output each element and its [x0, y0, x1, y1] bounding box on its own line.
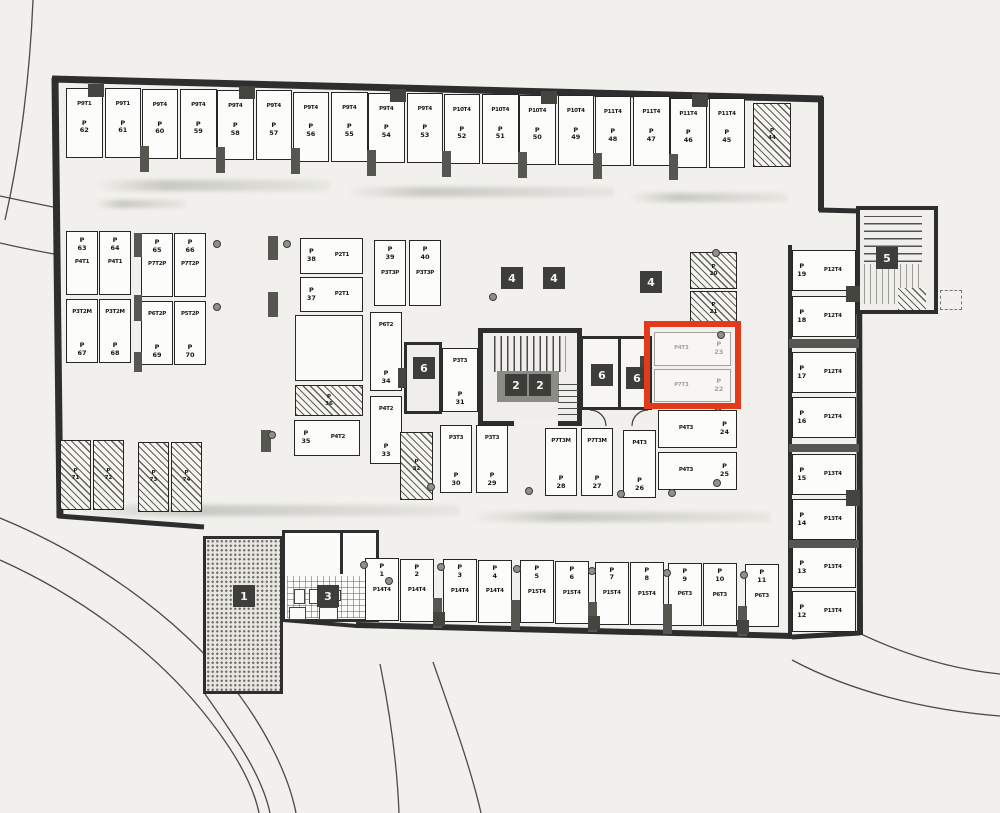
space-type-code: P14T4: [451, 589, 469, 595]
wc-fixture: [289, 607, 306, 620]
space-number: P72: [105, 468, 113, 481]
parking-space-68: P3T2MP68: [99, 299, 131, 363]
storage-square: [295, 315, 363, 381]
parking-space-55: P9T4P55: [331, 92, 368, 162]
space-number: P69: [152, 344, 161, 360]
area-marker-1: 1: [233, 585, 255, 607]
parking-space-12: P12P13T4: [792, 591, 856, 632]
space-number: P24: [713, 421, 736, 437]
area-marker-6: 6: [591, 364, 613, 386]
area-marker-2: 2: [529, 374, 551, 396]
space-number: P7: [609, 567, 614, 583]
parking-space-49: P10T4P49: [558, 95, 595, 165]
parking-space-15: P15P13T4: [792, 454, 856, 495]
space-type-code: P12T4: [811, 314, 854, 320]
space-number: P31: [455, 391, 464, 407]
structural-pillar: [511, 600, 520, 630]
parking-space-71: P71: [60, 440, 91, 510]
parking-space-62: P9T1P62: [66, 88, 103, 158]
parking-space-2: P2P14T4: [400, 559, 434, 622]
area-marker-4: 4: [543, 267, 565, 289]
parking-space-70: P5T2PP70: [174, 301, 206, 365]
space-number: P46: [684, 129, 693, 145]
structural-pillar: [291, 148, 300, 174]
space-number: P6: [569, 566, 574, 582]
space-number: P68: [110, 342, 119, 358]
space-type-code: P7T3M: [551, 439, 570, 445]
space-number: P12: [793, 604, 812, 620]
parking-space-26: P4T3P26: [623, 430, 656, 498]
parking-space-9: P9P6T3: [668, 563, 702, 626]
space-number: P14: [793, 512, 812, 528]
space-type-code: P4T1: [75, 260, 89, 266]
parking-space-27: P7T3MP27: [581, 428, 613, 496]
space-type-code: P9T1: [116, 102, 130, 108]
space-number: P66: [185, 239, 194, 255]
column-dot: [213, 303, 221, 311]
door-marker: [692, 94, 708, 107]
space-number: P63: [77, 237, 86, 253]
parking-space-10: P10P6T3: [703, 563, 737, 626]
door-marker: [541, 91, 557, 104]
column-dot: [713, 479, 721, 487]
space-number: P37: [301, 287, 322, 303]
area-marker-5: 5: [876, 247, 898, 269]
space-number: P29: [487, 472, 496, 488]
structural-pillar: [268, 292, 278, 317]
stair-steps: [558, 379, 578, 415]
space-type-code: P3T3: [453, 359, 467, 365]
space-type-code: P12T4: [811, 370, 854, 376]
column-dot: [213, 240, 221, 248]
space-number: P35: [295, 430, 317, 446]
space-type-code: P10T4: [528, 109, 546, 115]
door-marker: [846, 286, 860, 302]
space-type-code: P3T3: [449, 436, 463, 442]
space-type-code: P4T2: [379, 407, 393, 413]
parking-space-19: P19P12T4: [792, 250, 856, 291]
space-type-code: P11T4: [718, 112, 736, 118]
area-marker-3: 3: [317, 585, 339, 607]
space-number: P34: [381, 370, 390, 386]
space-number: P20: [710, 264, 718, 277]
space-type-code: P12T4: [811, 415, 854, 421]
column-dot: [740, 571, 748, 579]
parking-space-61: P9T1P61: [105, 88, 142, 158]
space-type-code: P7T2P: [148, 262, 166, 268]
parking-space-29: P3T3P29: [476, 425, 508, 493]
space-number: P15: [793, 467, 812, 483]
structural-pillar: [216, 147, 225, 173]
door-marker: [846, 490, 860, 506]
space-number: P9: [682, 568, 687, 584]
space-number: P48: [608, 128, 617, 144]
column-dot: [360, 561, 368, 569]
space-type-code: P4T3: [632, 441, 646, 447]
space-type-code: P7T2P: [181, 262, 199, 268]
space-number: P51: [496, 126, 505, 142]
door-marker: [737, 620, 749, 634]
space-type-code: P11T4: [679, 112, 697, 118]
space-number: P38: [301, 248, 322, 264]
space-number: P19: [793, 263, 812, 279]
space-type-code: P9T4: [418, 107, 432, 113]
structural-pillar: [593, 153, 602, 179]
gravel-area: [203, 536, 283, 694]
space-number: P5: [534, 565, 539, 581]
floor-plan-scan: P9T1P62P9T1P61P9T4P60P9T4P59P9T4P58P9T4P…: [0, 0, 1000, 813]
space-type-code: P9T4: [228, 104, 242, 110]
parking-space-7: P7P15T4: [595, 562, 629, 625]
space-number: P32: [413, 459, 421, 472]
column-dot: [427, 483, 435, 491]
column-dot: [489, 293, 497, 301]
space-type-code: P14T4: [373, 588, 391, 594]
column-dot: [268, 431, 276, 439]
space-number: P65: [152, 239, 161, 255]
space-type-code: P7T3M: [587, 439, 606, 445]
door-marker: [433, 612, 445, 626]
space-type-code: P3T3: [485, 436, 499, 442]
door-marker: [588, 616, 600, 630]
space-type-code: P6T3: [678, 592, 692, 598]
structural-pillar: [518, 152, 527, 178]
parking-space-25: P4T3P25: [658, 452, 737, 490]
space-type-code: P13T4: [811, 472, 854, 478]
space-type-code: P11T4: [642, 110, 660, 116]
space-number: P64: [110, 237, 119, 253]
space-type-code: P6T3: [713, 593, 727, 599]
parking-space-33: P4T2P33: [370, 396, 402, 464]
space-type-code: P13T4: [811, 517, 854, 523]
highlight-rectangle: [644, 321, 741, 409]
parking-space-66: P66P7T2P: [174, 233, 206, 297]
annex-pad: [940, 290, 962, 310]
space-number: P55: [345, 123, 354, 139]
parking-space-11: P11P6T3: [745, 564, 779, 627]
space-type-code: P3T2M: [105, 310, 124, 316]
parking-space-72: P72: [93, 440, 124, 510]
space-number: P33: [381, 443, 390, 459]
parking-space-69: P6T2PP69: [141, 301, 173, 365]
space-number: P57: [269, 122, 278, 138]
space-type-code: P10T4: [491, 108, 509, 114]
parking-space-13: P13P13T4: [792, 547, 856, 588]
structural-pillar: [442, 151, 451, 177]
space-number: P18: [793, 309, 812, 325]
parking-space-38: P38P2T1: [300, 238, 363, 274]
space-number: P53: [420, 124, 429, 140]
space-number: P3: [457, 564, 462, 580]
space-number: P30: [451, 472, 460, 488]
parking-space-51: P10T4P51: [482, 94, 519, 164]
parking-space-4: P4P14T4: [478, 560, 512, 623]
parking-space-36: P36: [295, 385, 363, 416]
wc-fixture: [294, 589, 305, 604]
door-marker: [390, 89, 406, 102]
area-marker-4: 4: [640, 271, 662, 293]
parking-space-18: P18P12T4: [792, 296, 856, 337]
column-dot: [525, 487, 533, 495]
scan-smudge: [95, 200, 185, 208]
space-number: P8: [644, 567, 649, 583]
space-number: P61: [118, 120, 127, 136]
space-number: P40: [420, 246, 429, 262]
space-type-code: P14T4: [486, 589, 504, 595]
space-number: P56: [306, 123, 315, 139]
space-type-code: P6T2P: [148, 312, 166, 318]
structural-pillar: [134, 233, 142, 257]
parking-space-67: P3T2MP67: [66, 299, 98, 363]
space-number: P67: [77, 342, 86, 358]
parking-space-37: P37P2T1: [300, 277, 363, 312]
space-type-code: P2T1: [322, 292, 362, 298]
column-dot: [668, 489, 676, 497]
space-number: P60: [155, 121, 164, 137]
column-dot: [283, 240, 291, 248]
space-number: P70: [185, 344, 194, 360]
parking-space-6: P6P15T4: [555, 561, 589, 624]
room-divider-wall: [618, 336, 621, 410]
parking-space-39: P39P3T3P: [374, 240, 406, 306]
structural-pillar: [669, 154, 678, 180]
space-type-code: P9T4: [342, 106, 356, 112]
structural-pillar: [268, 236, 278, 260]
space-type-code: P4T2: [317, 435, 359, 441]
space-type-code: P6T2: [379, 323, 393, 329]
space-number: P25: [713, 463, 736, 479]
space-type-code: P15T4: [638, 592, 656, 598]
space-type-code: P3T3P: [381, 271, 399, 277]
wc-inner-wall: [340, 532, 343, 574]
space-type-code: P9T4: [153, 103, 167, 109]
structural-pillar: [134, 295, 142, 321]
space-type-code: P15T4: [528, 590, 546, 596]
column-dot: [712, 249, 720, 257]
parking-space-5: P5P15T4: [520, 560, 554, 623]
space-type-code: P2T1: [322, 253, 362, 259]
space-number: P47: [647, 128, 656, 144]
column-dot: [437, 563, 445, 571]
space-number: P58: [231, 122, 240, 138]
space-type-code: P9T4: [191, 103, 205, 109]
space-number: P36: [325, 394, 333, 407]
space-type-code: P9T4: [379, 107, 393, 113]
area-marker-4: 4: [501, 267, 523, 289]
space-type-code: P5T2P: [181, 312, 199, 318]
door-marker: [398, 368, 406, 388]
space-type-code: P14T4: [408, 588, 426, 594]
space-type-code: P9T1: [77, 102, 91, 108]
space-number: P39: [385, 246, 394, 262]
stair-treads: [494, 336, 566, 372]
space-number: P59: [194, 121, 203, 137]
space-number: P2: [414, 564, 419, 580]
space-type-code: P10T4: [567, 109, 585, 115]
space-number: P52: [457, 126, 466, 142]
space-number: P50: [533, 127, 542, 143]
space-number: P16: [793, 410, 812, 426]
structural-pillar: [663, 604, 672, 634]
space-type-code: P13T4: [811, 609, 854, 615]
space-number: P17: [793, 365, 812, 381]
space-type-code: P9T4: [267, 104, 281, 110]
parking-space-57: P9T4P57: [256, 90, 293, 160]
parking-space-24: P4T3P24: [658, 410, 737, 448]
core-door-opening: [514, 418, 558, 428]
column-dot: [385, 577, 393, 585]
column-dot: [588, 567, 596, 575]
scan-smudge: [470, 512, 770, 522]
space-type-code: P3T2M: [72, 310, 91, 316]
space-number: P62: [80, 120, 89, 136]
structural-pillar: [134, 352, 142, 372]
space-type-code: P4T3: [659, 426, 713, 432]
parking-space-40: P40P3T3P: [409, 240, 441, 306]
parking-space-74: P74: [171, 442, 202, 512]
space-number: P21: [710, 302, 718, 315]
parking-space-44: P44: [753, 103, 791, 167]
parking-space-3: P3P14T4: [443, 559, 477, 622]
space-number: P27: [592, 475, 601, 491]
space-number: P74: [183, 470, 191, 483]
scan-smudge: [80, 505, 460, 516]
scan-smudge: [628, 193, 788, 202]
parking-space-59: P9T4P59: [180, 89, 217, 159]
space-number: P73: [150, 470, 158, 483]
area-marker-6: 6: [413, 357, 435, 379]
parking-space-17: P17P12T4: [792, 352, 856, 393]
annex-hatch: [898, 288, 926, 310]
space-type-code: P11T4: [604, 110, 622, 116]
space-type-code: P10T4: [453, 108, 471, 114]
parking-space-47: P11T4P47: [633, 96, 670, 166]
area-marker-2: 2: [505, 374, 527, 396]
space-number: P4: [492, 565, 497, 581]
parking-space-64: P64P4T1: [99, 231, 131, 295]
column-dot: [617, 490, 625, 498]
space-number: P26: [635, 477, 644, 493]
space-type-code: P15T4: [603, 591, 621, 597]
structural-pillar: [367, 150, 376, 176]
scan-smudge: [345, 187, 615, 197]
space-number: P71: [72, 468, 80, 481]
door-marker: [239, 86, 255, 99]
parking-space-35: P35P4T2: [294, 420, 360, 456]
parking-space-45: P11T4P45: [709, 98, 746, 168]
space-type-code: P6T3: [755, 594, 769, 600]
parking-space-65: P65P7T2P: [141, 233, 173, 297]
parking-space-20: P20: [690, 252, 737, 289]
space-number: P10: [715, 568, 724, 584]
space-type-code: P13T4: [811, 565, 854, 571]
parking-space-30: P3T3P30: [440, 425, 472, 493]
parking-space-63: P63P4T1: [66, 231, 98, 295]
space-type-code: P15T4: [563, 591, 581, 597]
space-number: P28: [556, 475, 565, 491]
space-type-code: P9T4: [304, 106, 318, 112]
space-type-code: P3T3P: [416, 271, 434, 277]
space-number: P44: [768, 128, 776, 141]
space-number: P13: [793, 560, 812, 576]
parking-space-1: P1P14T4: [365, 558, 399, 621]
parking-space-31: P3T3P31: [442, 348, 478, 412]
space-number: P11: [757, 569, 766, 585]
space-type-code: P4T1: [108, 260, 122, 266]
parking-space-8: P8P15T4: [630, 562, 664, 625]
space-type-code: P12T4: [811, 268, 854, 274]
wc-fixture: [319, 607, 338, 620]
structural-pillar: [140, 146, 149, 172]
column-dot: [663, 569, 671, 577]
space-number: P45: [722, 129, 731, 145]
space-type-code: P4T3: [659, 468, 713, 474]
parking-space-73: P73: [138, 442, 169, 512]
space-number: P54: [382, 124, 391, 140]
column-dot: [513, 565, 521, 573]
door-marker: [88, 84, 104, 97]
parking-space-28: P7T3MP28: [545, 428, 577, 496]
parking-space-16: P16P12T4: [792, 397, 856, 438]
scan-smudge: [95, 180, 330, 191]
space-number: P1: [379, 563, 384, 579]
parking-space-53: P9T4P53: [407, 93, 444, 163]
space-number: P49: [571, 127, 580, 143]
